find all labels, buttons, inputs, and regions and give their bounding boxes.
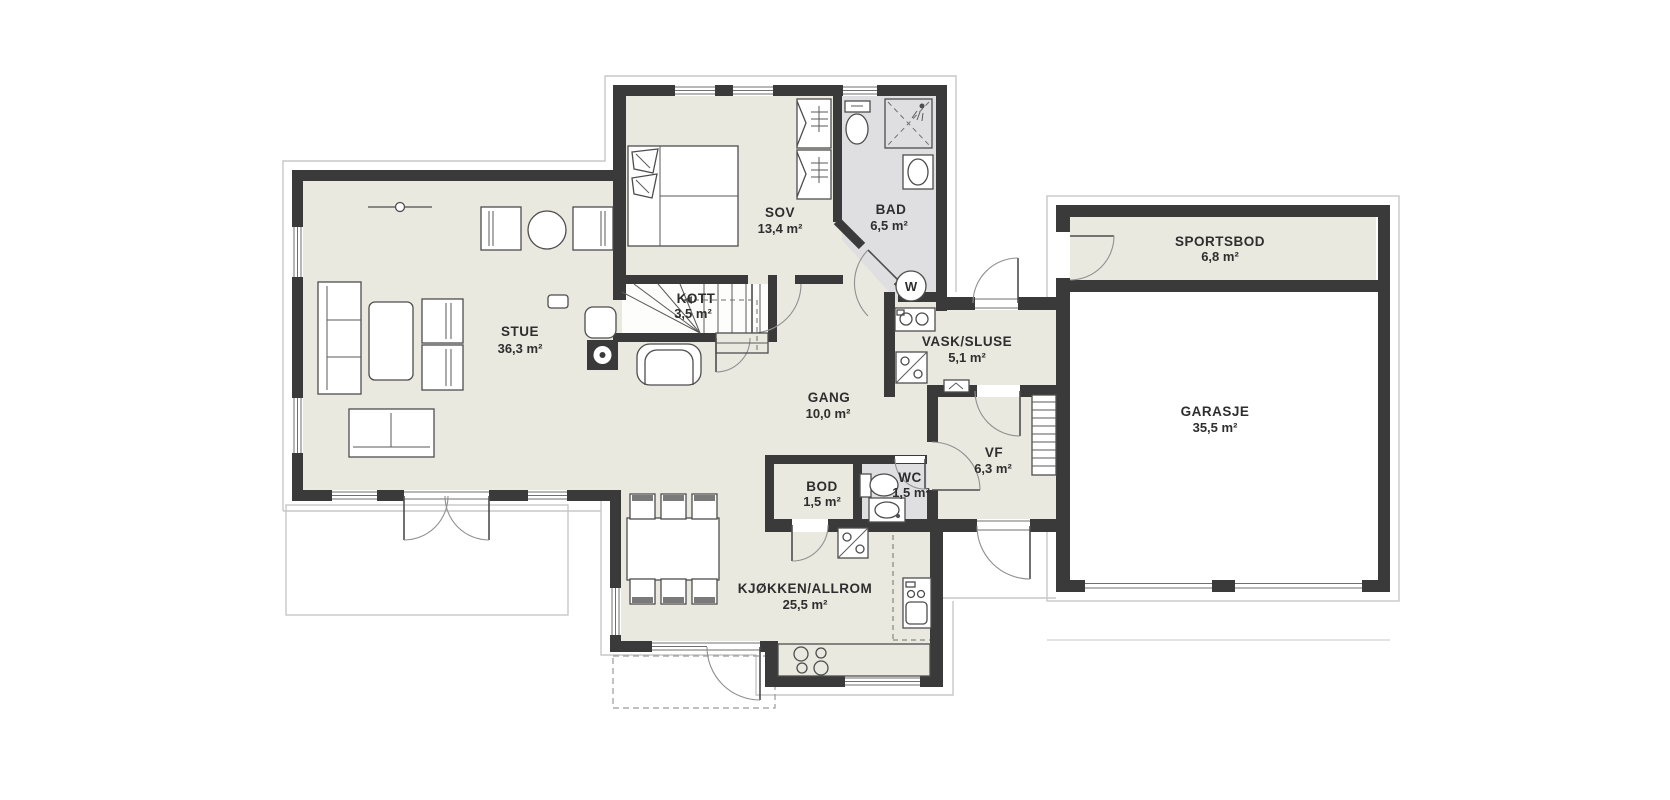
dining-chair [481, 207, 521, 250]
armchair [422, 299, 463, 343]
room-area-vf: 6,3 m² [974, 461, 1012, 476]
room-label-vask: VASK/SLUSE [922, 334, 1012, 349]
sofa [318, 282, 361, 394]
coffee-table [369, 302, 413, 380]
lounge-chair [637, 344, 701, 385]
dining-chair [661, 494, 686, 519]
room-label-gang: GANG [808, 390, 851, 405]
wardrobe [797, 99, 831, 148]
room-label-garasje: GARASJE [1181, 404, 1250, 419]
room-label-wc: WC [898, 470, 922, 485]
window [292, 398, 303, 453]
hearth-plate [585, 307, 616, 338]
terrace-outline [286, 505, 568, 615]
floorplan-page: W [0, 0, 1670, 800]
room-label-bad: BAD [876, 202, 907, 217]
laundry-counter-icon [895, 308, 935, 331]
garage-door [1235, 580, 1362, 592]
side-table [548, 295, 568, 308]
dishwasher-icon [838, 528, 868, 558]
window [528, 490, 567, 501]
room-area-sov: 13,4 m² [758, 221, 803, 236]
window [292, 227, 303, 277]
room-label-sportsbod: SPORTSBOD [1175, 234, 1265, 249]
water-tank-icon [896, 352, 927, 383]
room-label-kjokken: KJØKKEN/ALLROM [738, 581, 873, 596]
vf-wardrobe-icon [1032, 395, 1056, 475]
room-label-bod: BOD [806, 479, 838, 494]
garage-door [1085, 580, 1212, 592]
room-area-vask: 5,1 m² [948, 350, 986, 365]
room-area-kott: 3,5 m² [674, 306, 712, 321]
wc-sink-icon [869, 498, 905, 522]
window [652, 641, 707, 652]
dining-table [627, 518, 719, 580]
bathroom-sink-icon [903, 155, 933, 189]
armchair [422, 345, 463, 390]
room-label-kott: KOTT [677, 291, 716, 306]
door-kitchen-terrace [707, 641, 760, 700]
toilet-icon [845, 101, 870, 144]
floorplan-drawing: W [0, 0, 1670, 800]
window [845, 676, 920, 687]
room-area-wc: 1,5 m² [892, 485, 930, 500]
room-area-stue: 36,3 m² [498, 341, 543, 356]
fixtures-vf [1032, 395, 1056, 475]
wood-stove [587, 340, 618, 370]
door-vf-exterior [977, 519, 1030, 579]
window [843, 85, 877, 96]
window [332, 490, 377, 501]
kitchen-sink-icon [903, 578, 931, 628]
dining-chair [630, 494, 655, 519]
water-heater-icon: W [896, 271, 926, 301]
room-label-stue: STUE [501, 324, 539, 339]
dining-chair [692, 579, 717, 604]
dining-chair [692, 494, 717, 519]
dining-chair [573, 207, 613, 250]
vent-hatch-icon [944, 380, 969, 392]
water-heater-label: W [905, 279, 918, 294]
room-area-gang: 10,0 m² [806, 406, 851, 421]
room-area-kjokken: 25,5 m² [783, 597, 828, 612]
window [610, 588, 621, 635]
room-label-sov: SOV [765, 205, 795, 220]
round-table [528, 211, 566, 249]
sofa-2seat [349, 409, 434, 457]
stoop-outline [613, 656, 775, 708]
double-door-terrace [404, 490, 489, 540]
dining-chair [661, 579, 686, 604]
window [733, 85, 773, 96]
room-label-vf: VF [985, 445, 1003, 460]
room-area-sportsbod: 6,8 m² [1201, 249, 1239, 264]
window [675, 85, 715, 96]
double-bed [628, 146, 738, 246]
room-area-garasje: 35,5 m² [1193, 420, 1238, 435]
door-vask-exterior [973, 258, 1018, 310]
dining-chair [630, 579, 655, 604]
room-area-bad: 6,5 m² [870, 218, 908, 233]
room-area-bod: 1,5 m² [803, 494, 841, 509]
wardrobe [797, 150, 831, 199]
